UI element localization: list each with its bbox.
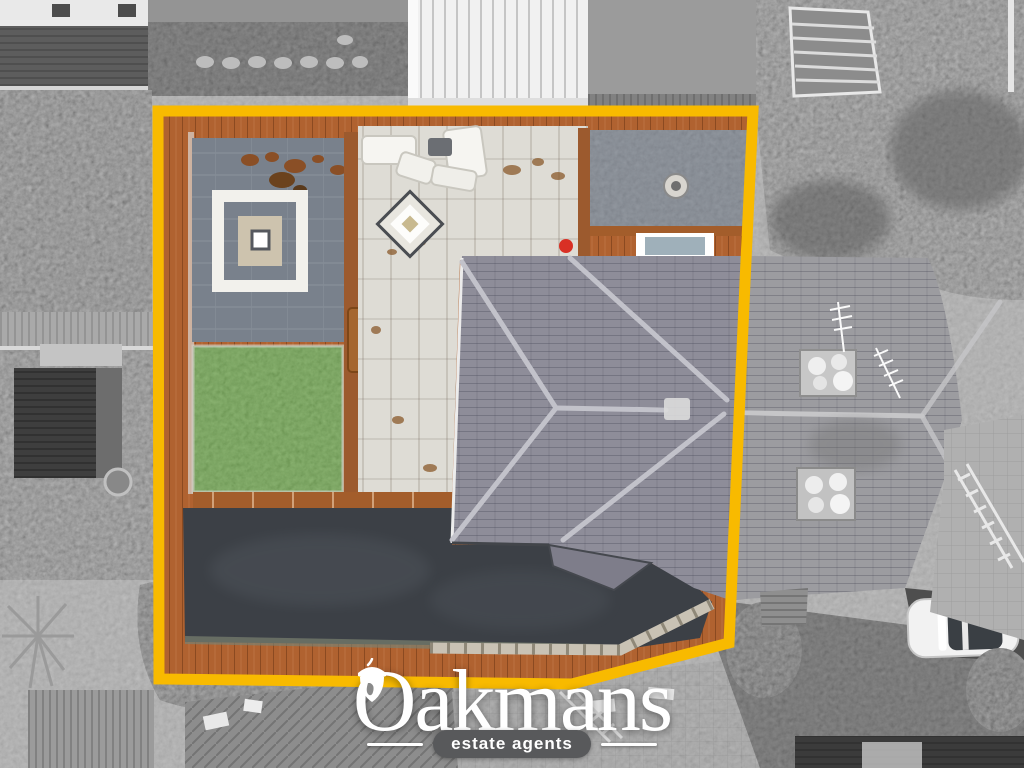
side-path-planks bbox=[0, 312, 154, 348]
flat-roof bbox=[588, 0, 760, 98]
garden-steps-ribs bbox=[760, 588, 808, 626]
roof-vent-centre bbox=[671, 181, 681, 191]
driveway-sheen bbox=[430, 570, 610, 630]
conservatory bbox=[408, 0, 588, 106]
chimney-pot bbox=[805, 476, 823, 494]
chimney-pot bbox=[829, 473, 847, 491]
brand-tagline: estate agents bbox=[433, 730, 591, 758]
frame-bottom bbox=[408, 98, 588, 106]
shed-side bbox=[96, 368, 122, 478]
aerial-property-photo: Oakmans estate agents bbox=[0, 0, 1024, 768]
path-strip bbox=[148, 0, 410, 24]
window bbox=[52, 4, 70, 17]
chimney-pot bbox=[813, 376, 827, 390]
lawn-texture bbox=[193, 346, 343, 492]
chimney-pot bbox=[833, 371, 853, 391]
chimney-stack-upper bbox=[800, 350, 856, 396]
lawn bbox=[193, 346, 343, 492]
tree-shadow bbox=[770, 180, 890, 260]
skylight-glass bbox=[645, 237, 705, 255]
gravel-bed bbox=[148, 0, 414, 96]
garden-texture bbox=[0, 90, 152, 312]
frame-edge bbox=[408, 0, 418, 106]
eave-shadow bbox=[452, 543, 549, 545]
dark-roof-ribs bbox=[0, 26, 148, 90]
acorn-icon bbox=[353, 658, 391, 704]
chimney-pot bbox=[808, 357, 826, 375]
roof-edge-ticks bbox=[588, 94, 760, 106]
glazing-bars bbox=[408, 0, 588, 106]
coffee-table bbox=[428, 138, 452, 156]
top-right-garden bbox=[756, 0, 1024, 300]
barrel bbox=[105, 469, 131, 495]
chimney-pot bbox=[808, 497, 824, 513]
soot-patch bbox=[809, 419, 901, 471]
deck-walkway bbox=[193, 492, 453, 509]
red-object bbox=[559, 239, 573, 253]
driveway-sheen bbox=[210, 534, 430, 606]
tagline-rule-left bbox=[367, 743, 423, 746]
neighbor-rear-paving bbox=[930, 415, 1024, 640]
slate-patio bbox=[192, 138, 348, 342]
chimney-stack-lower bbox=[797, 468, 855, 520]
greenhouse bbox=[790, 8, 880, 96]
chimney bbox=[797, 468, 855, 520]
tagline-rule-right bbox=[601, 743, 657, 746]
paving-grid bbox=[930, 415, 1024, 640]
brand-logo: Oakmans estate agents bbox=[0, 658, 1024, 766]
ridge-vent-patch bbox=[664, 398, 690, 420]
timber-pile bbox=[40, 344, 122, 366]
fence-line bbox=[1008, 0, 1014, 92]
timber-strip bbox=[578, 128, 590, 260]
property-colour-region bbox=[158, 111, 753, 684]
tree-shadow bbox=[890, 90, 1024, 210]
feature-centre bbox=[252, 231, 269, 249]
chimney-pot bbox=[831, 354, 847, 370]
brand-tagline-row: estate agents bbox=[0, 730, 1024, 766]
window bbox=[118, 4, 136, 17]
chimney-pot bbox=[830, 494, 850, 514]
